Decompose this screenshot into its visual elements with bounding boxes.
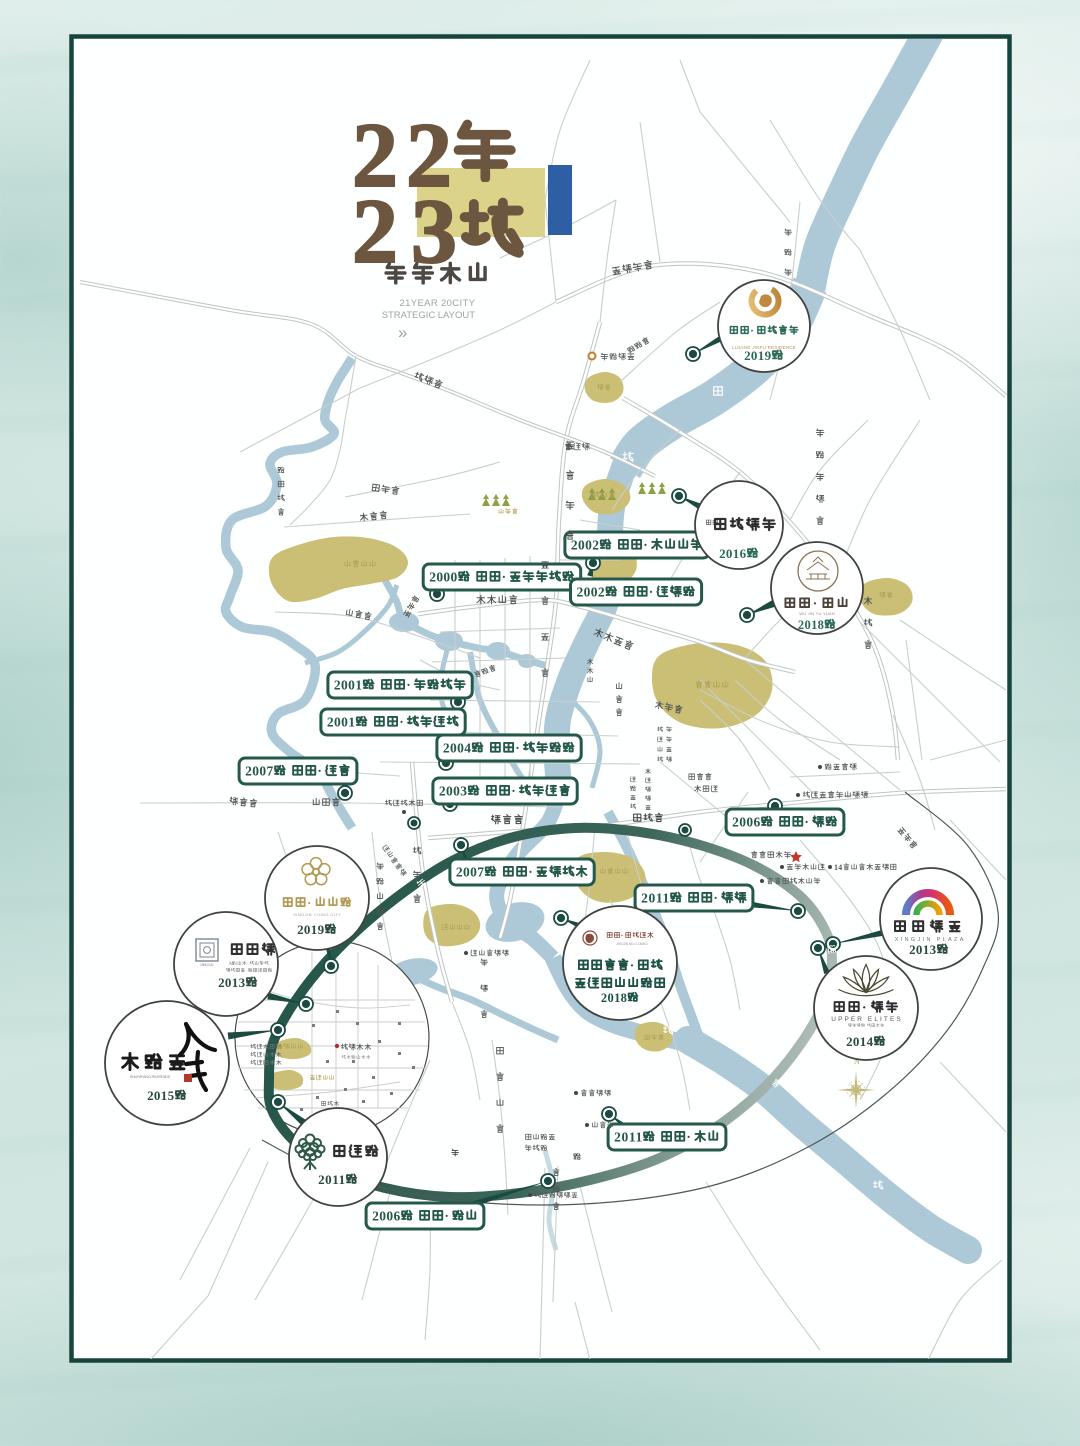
svg-text:·: ·: [515, 741, 520, 756]
svg-text:·: ·: [317, 764, 322, 779]
svg-text:XINGJIN NO.1 LIJIANG: XINGJIN NO.1 LIJIANG: [616, 942, 648, 946]
svg-text:2011: 2011: [641, 891, 669, 906]
svg-text:21YEAR 20CITY: 21YEAR 20CITY: [400, 298, 476, 309]
svg-text:2016: 2016: [719, 546, 747, 561]
svg-text:·: ·: [649, 585, 654, 600]
svg-text:2006: 2006: [372, 1209, 400, 1224]
svg-text:·: ·: [813, 596, 818, 611]
svg-text:2011: 2011: [614, 1130, 642, 1145]
svg-text:2019: 2019: [744, 348, 772, 363]
svg-text:·: ·: [713, 891, 718, 906]
svg-text:2018: 2018: [798, 618, 824, 632]
svg-text:MINGJUN: MINGJUN: [200, 963, 213, 967]
svg-text:2002: 2002: [577, 585, 605, 600]
svg-text:·: ·: [399, 715, 404, 730]
svg-text:2003: 2003: [439, 784, 467, 799]
svg-text:2001: 2001: [334, 678, 362, 693]
svg-text:STRATEGIC LAYOUT: STRATEGIC LAYOUT: [382, 310, 475, 321]
svg-text:·: ·: [686, 1130, 691, 1145]
svg-text:·: ·: [630, 958, 635, 973]
svg-text:·: ·: [804, 815, 809, 830]
svg-text:14: 14: [834, 863, 842, 872]
svg-text:·: ·: [643, 538, 648, 553]
svg-text:2001: 2001: [327, 715, 355, 730]
svg-text:XINGJIN YIJING CITY: XINGJIN YIJING CITY: [293, 912, 341, 917]
svg-text:2015: 2015: [147, 1088, 175, 1103]
svg-text:·: ·: [444, 1209, 449, 1224]
svg-text:·: ·: [307, 896, 311, 910]
svg-text:2002: 2002: [571, 538, 599, 553]
svg-text:»: »: [398, 323, 407, 342]
svg-text:·: ·: [528, 865, 533, 880]
svg-text:·: ·: [502, 570, 507, 585]
svg-text:·: ·: [621, 931, 624, 940]
svg-text:2006: 2006: [732, 815, 760, 830]
svg-text:2007: 2007: [456, 865, 484, 880]
svg-text:2007: 2007: [245, 764, 273, 779]
svg-text:2013: 2013: [909, 942, 937, 957]
svg-text:2019: 2019: [297, 922, 325, 937]
svg-text:WU JIN YU YUAN: WU JIN YU YUAN: [799, 611, 835, 616]
svg-text:2011: 2011: [318, 1172, 345, 1187]
svg-text:MIN: MIN: [229, 962, 237, 967]
svg-text:·: ·: [862, 1001, 867, 1016]
svg-text:2013: 2013: [218, 975, 246, 990]
svg-text:2018: 2018: [601, 991, 627, 1005]
svg-text:2004: 2004: [443, 741, 471, 756]
svg-text:·: ·: [511, 784, 516, 799]
svg-text:SHUIYIFANG RIVERSIDE: SHUIYIFANG RIVERSIDE: [130, 1074, 171, 1079]
svg-text:·: ·: [406, 678, 411, 693]
svg-text:2000: 2000: [429, 570, 457, 585]
svg-text:2014: 2014: [846, 1034, 874, 1049]
svg-text:·: ·: [750, 326, 754, 337]
